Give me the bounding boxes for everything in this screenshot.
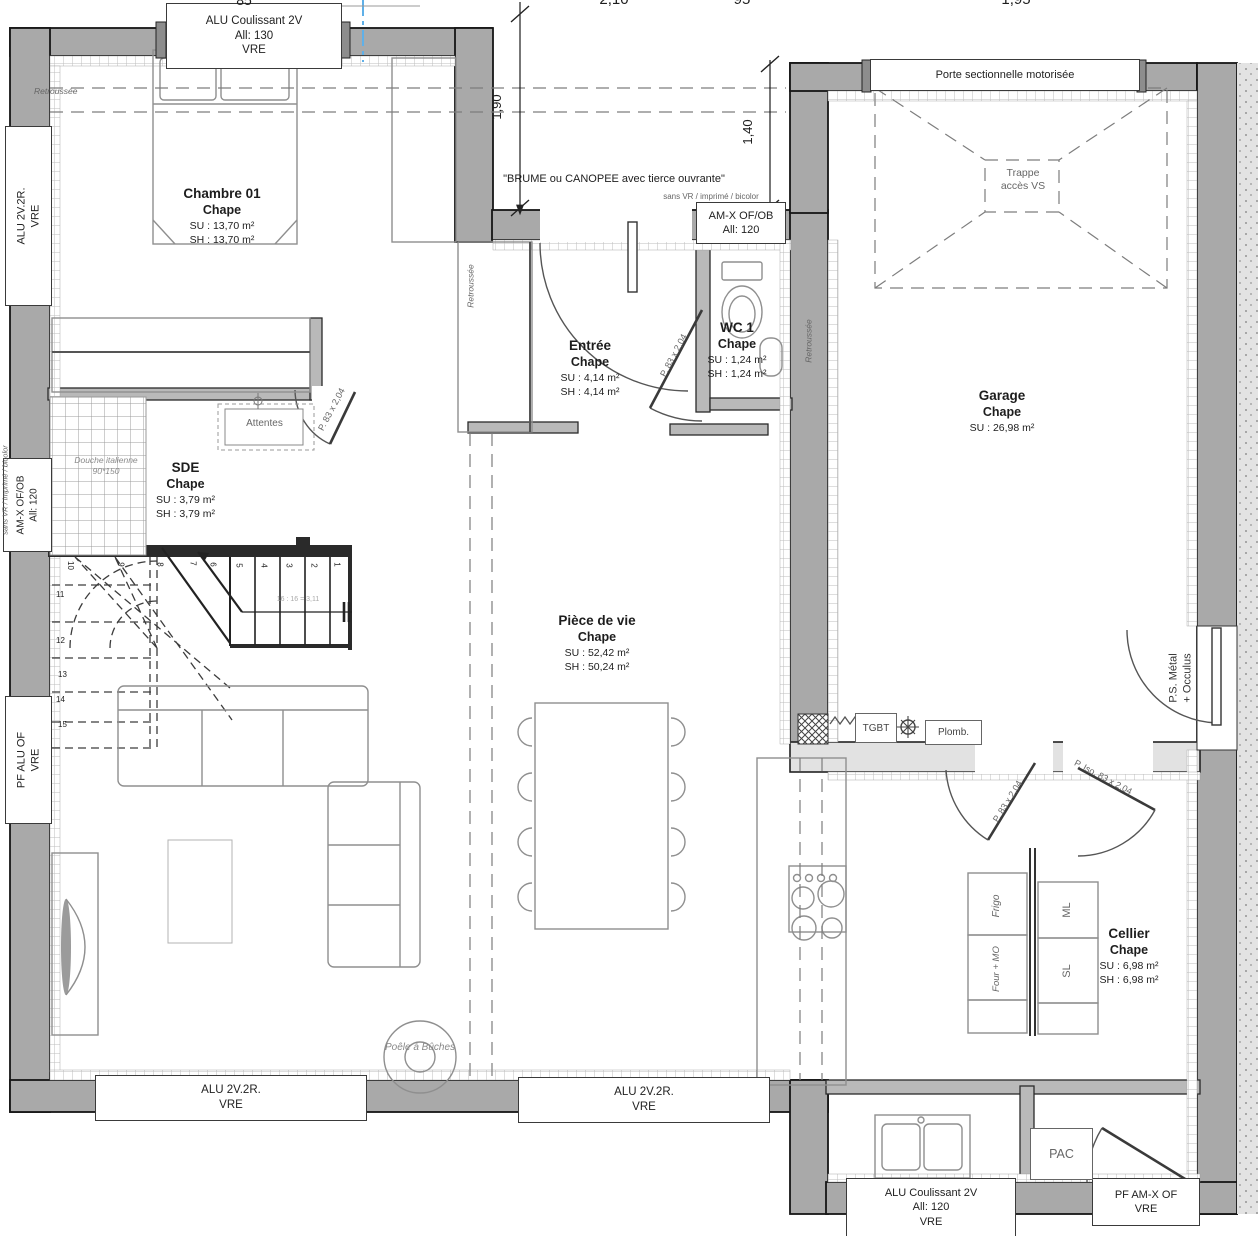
kitchen-island (757, 758, 846, 1085)
junction-box (798, 714, 828, 744)
stair-tread-8: 8 (156, 562, 165, 566)
stair-tread-7: 7 (189, 561, 198, 565)
closet-chambre (52, 318, 310, 392)
retroussee-note-garage: Retroussée (800, 300, 818, 382)
dim-1-95: 1,95 (986, 0, 1046, 10)
stair-tread-1: 1 (333, 562, 342, 566)
dim-95: 95 (720, 0, 764, 10)
room-wc: WC 1 Chape SU : 1,24 m² SH : 1,24 m² (683, 320, 791, 381)
garage-side-door-label: P.S. Métal + Occulus (1160, 634, 1202, 722)
room-entree: Entrée Chape SU : 4,14 m² SH : 4,14 m² (530, 338, 650, 399)
wood-stove-label: Poêle à Bûches (366, 1042, 474, 1055)
attentes-label: Attentes (228, 418, 301, 431)
room-chambre: Chambre 01 Chape SU : 13,70 m² SH : 13,7… (142, 186, 302, 247)
stair-tread-2: 2 (310, 563, 319, 567)
glazing-note: "BRUME ou CANOPEE avec tierce ouvrante" (494, 173, 734, 187)
window-entry: AM-X OF/OB All: 120 (696, 202, 786, 244)
sans-vr-note-top: sans VR / imprimé / bicolor (637, 192, 785, 202)
tgbt-box: TGBT (855, 713, 897, 743)
stair-tread-13: 13 (58, 670, 67, 679)
dim-2-10: 2,10 (584, 0, 644, 10)
sofa-long (118, 686, 368, 786)
stair-tread-15: 15 (58, 720, 67, 729)
ml-label: ML (1052, 884, 1084, 936)
stair-tread-11: 11 (56, 590, 64, 599)
pac-box: PAC (1030, 1128, 1093, 1180)
window-chambre-left: ALU 2V.2R. VRE (5, 126, 52, 306)
stair-tread-3: 3 (285, 563, 294, 567)
crawlspace-hatch-label: Trappeaccès VS (986, 167, 1060, 193)
room-garage: Garage Chape SU : 26,98 m² (927, 388, 1077, 435)
dim-85: 85 (222, 0, 266, 10)
stair-tread-14: 14 (56, 695, 65, 704)
window-annex-bottom: ALU Coulissant 2V All: 120 VRE (846, 1178, 1016, 1236)
four-mo-label: Four + MO (982, 938, 1012, 1000)
window-bottom-right: ALU 2V.2R. VRE (518, 1077, 770, 1123)
garage-door-label: Porte sectionnelle motorisée (870, 59, 1140, 91)
window-living-left: PF ALU OF VRE (5, 696, 52, 824)
retroussee-note-entree: Retroussée (462, 248, 480, 324)
sofa-side (328, 782, 420, 967)
retroussee-note-top: Retroussée (34, 86, 106, 97)
room-piece-de-vie: Pièce de vie Chape SU : 52,42 m² SH : 50… (518, 613, 676, 674)
garage-side-door-leaf (1212, 628, 1221, 725)
stair-tread-12: 12 (56, 636, 65, 645)
stair-tread-9: 9 (117, 562, 126, 566)
plumbing-symbol (897, 716, 919, 738)
window-annex-pf: PF AM-X OF VRE (1092, 1178, 1200, 1226)
dim-1-40: 1,40 (737, 100, 759, 164)
wardrobe-chambre (392, 58, 456, 242)
rug (168, 840, 232, 943)
stair-tread-5: 5 (235, 563, 244, 567)
window-bottom-left: ALU 2V.2R. VRE (95, 1075, 367, 1121)
floor-plan: ALU Coulissant 2V All: 130 VRE ALU 2V.2R… (0, 0, 1258, 1236)
staircase (48, 537, 352, 748)
plomb-box: Plomb. (925, 720, 982, 745)
stair-tread-4: 4 (260, 563, 269, 567)
kitchen-sink (875, 1115, 970, 1178)
dim-1-90: 1,90 (486, 75, 508, 139)
frigo-label: Frigo (982, 878, 1012, 933)
dining-table (518, 703, 685, 929)
room-cellier: Cellier Chape SU : 6,98 m² SH : 6,98 m² (1070, 926, 1188, 987)
window-chambre-top: ALU Coulissant 2V All: 130 VRE (166, 3, 342, 69)
douche-label: Douche italienne90*150 (60, 455, 152, 476)
sl-label: SL (1052, 942, 1084, 1000)
sans-vr-note-left: sans VR / imprimé / bicolor (0, 428, 12, 552)
stair-tread-6: 6 (209, 562, 218, 566)
stair-note: 16 : 16 = 3,11 (248, 596, 348, 605)
entry-door-leaf (628, 222, 637, 292)
stair-tread-10: 10 (66, 561, 75, 570)
